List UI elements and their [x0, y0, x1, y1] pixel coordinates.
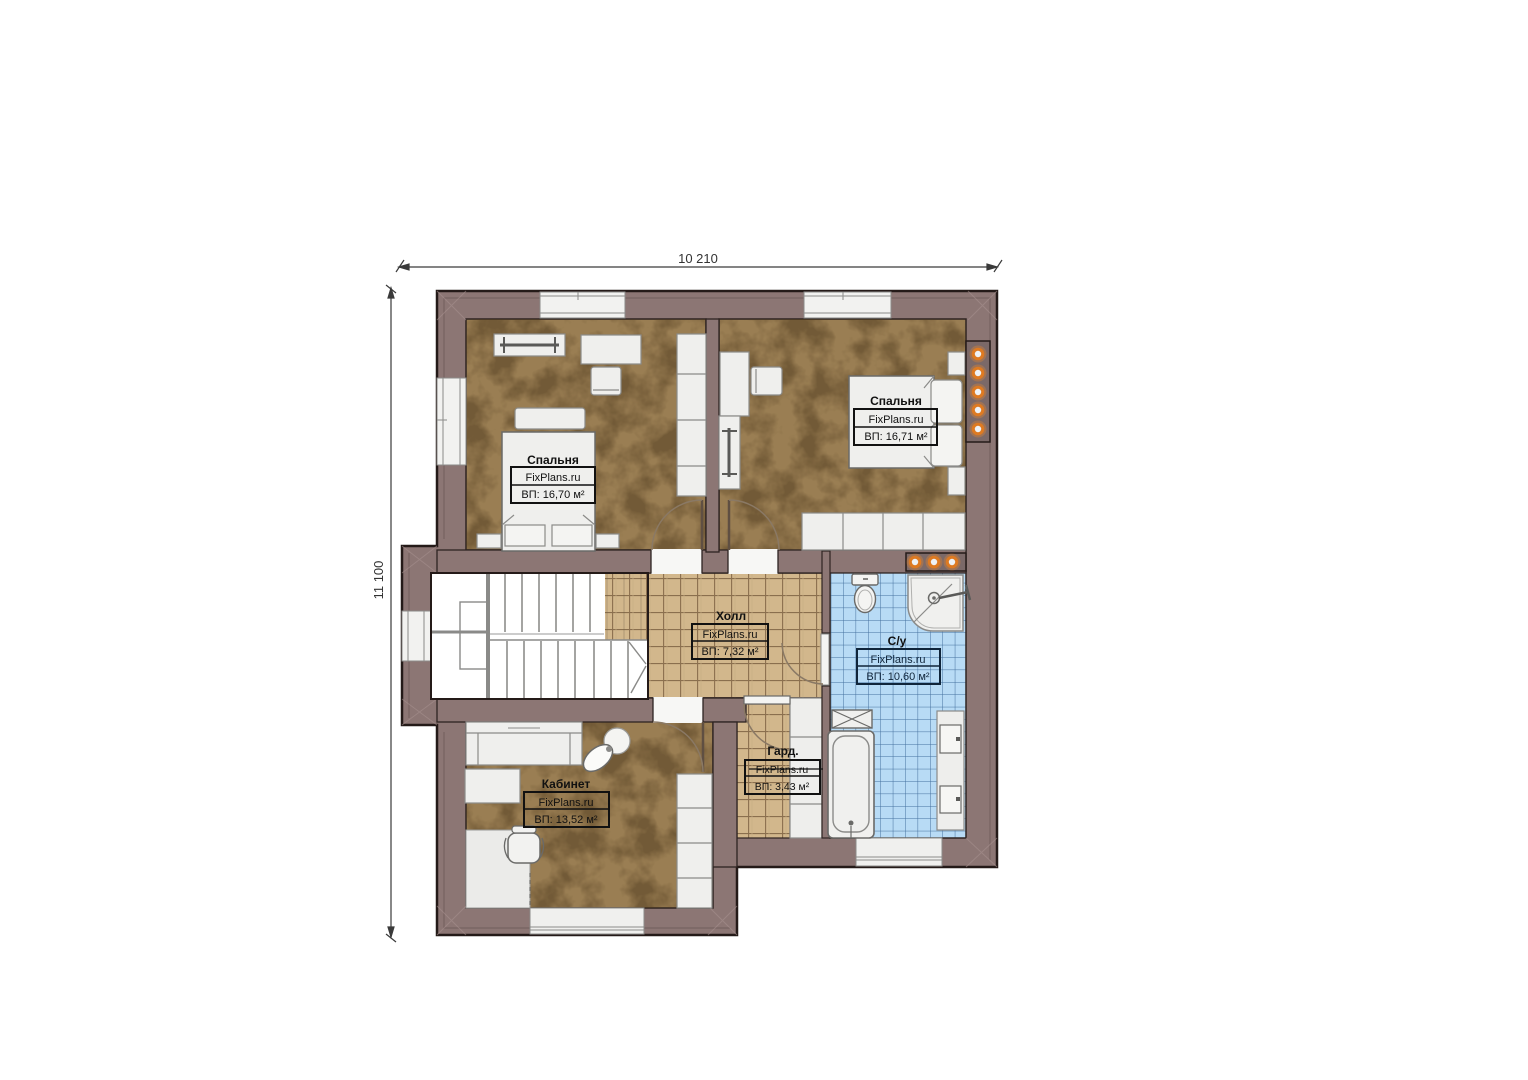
svg-text:Гард.: Гард. [767, 744, 798, 758]
svg-text:ВП: 13,52 м²: ВП: 13,52 м² [534, 814, 598, 826]
svg-text:ВП: 16,70 м²: ВП: 16,70 м² [521, 489, 585, 501]
svg-text:11 100: 11 100 [371, 561, 386, 600]
svg-text:ВП: 10,60 м²: ВП: 10,60 м² [866, 671, 930, 683]
svg-text:10 210: 10 210 [678, 251, 718, 266]
svg-text:FixPlans.ru: FixPlans.ru [870, 654, 925, 666]
svg-text:ВП: 16,71 м²: ВП: 16,71 м² [864, 431, 928, 443]
svg-text:Кабинет: Кабинет [542, 777, 591, 791]
svg-text:ВП: 3,43 м²: ВП: 3,43 м² [755, 781, 810, 793]
svg-text:С/у: С/у [888, 634, 907, 648]
svg-text:FixPlans.ru: FixPlans.ru [702, 629, 757, 641]
svg-text:FixPlans.ru: FixPlans.ru [868, 414, 923, 426]
svg-text:ВП: 7,32 м²: ВП: 7,32 м² [701, 646, 758, 658]
svg-text:FixPlans.ru: FixPlans.ru [756, 764, 809, 776]
svg-text:Холл: Холл [716, 609, 746, 623]
svg-text:FixPlans.ru: FixPlans.ru [538, 797, 593, 809]
svg-text:FixPlans.ru: FixPlans.ru [525, 472, 580, 484]
svg-text:Спальня: Спальня [527, 453, 579, 467]
svg-text:Спальня: Спальня [870, 394, 922, 408]
